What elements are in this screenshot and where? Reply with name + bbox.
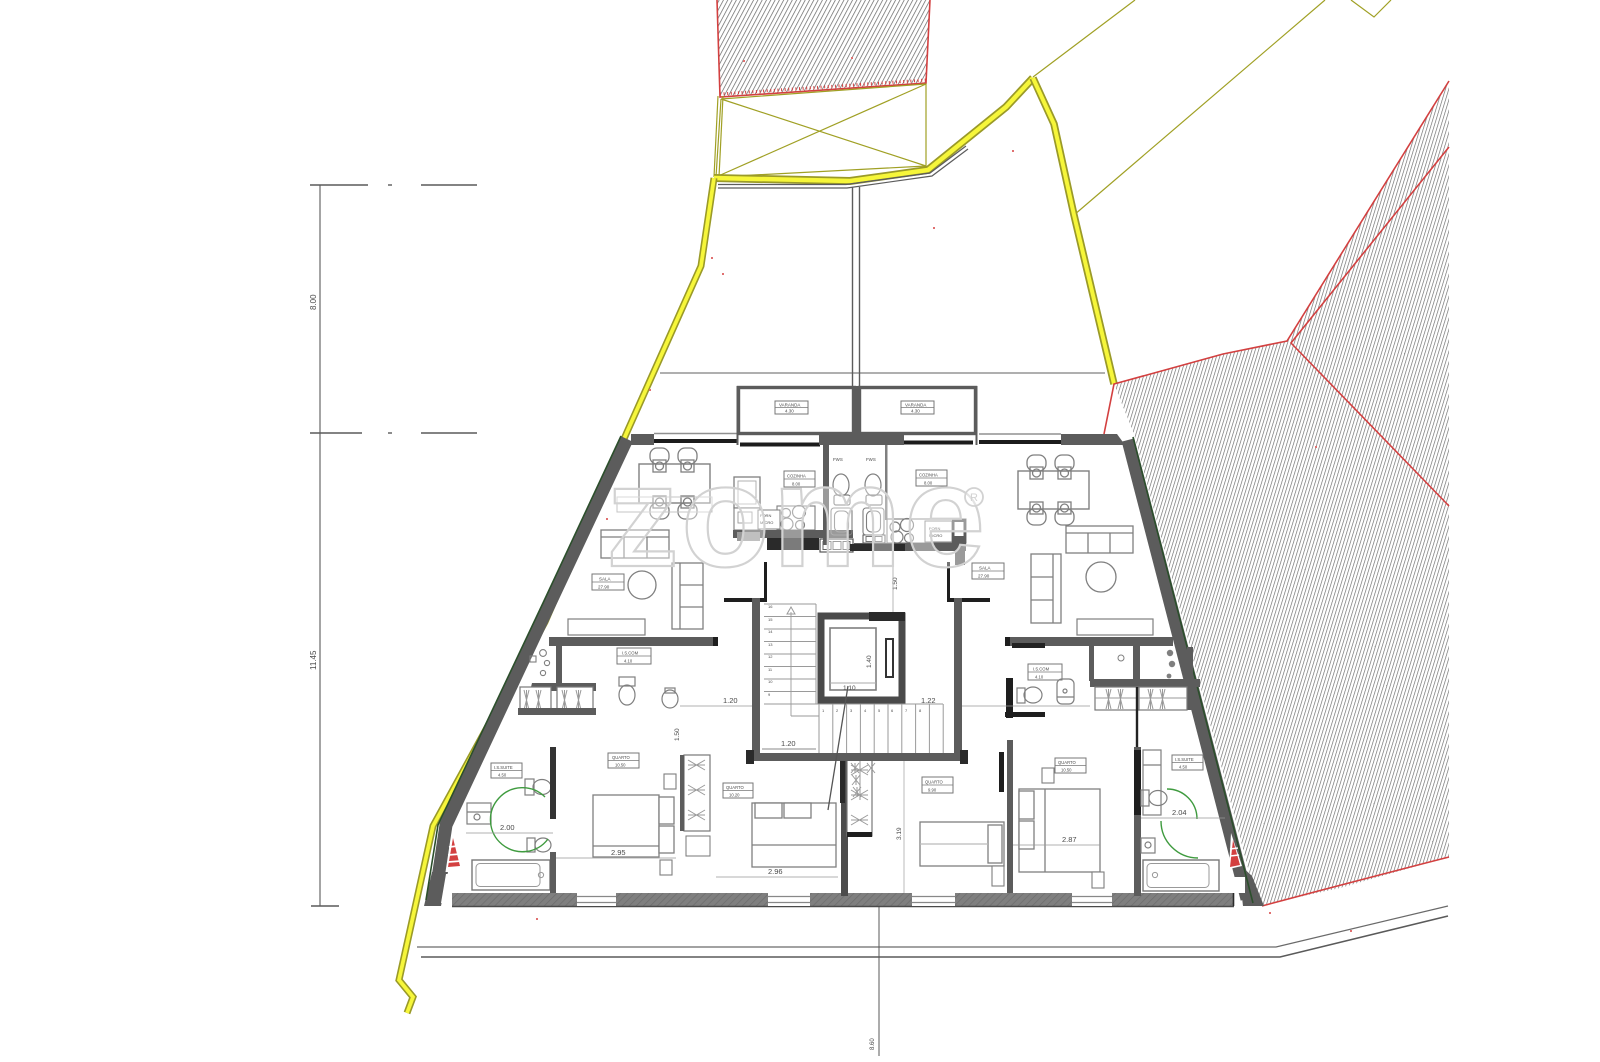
- svg-text:10.50: 10.50: [1061, 768, 1072, 773]
- svg-text:1.20: 1.20: [781, 739, 796, 748]
- svg-text:1.40: 1.40: [866, 655, 873, 668]
- svg-text:I.S.COM: I.S.COM: [622, 651, 639, 656]
- svg-text:4.10: 4.10: [624, 659, 633, 664]
- svg-text:1.50: 1.50: [674, 728, 681, 741]
- svg-text:1.22: 1.22: [921, 696, 936, 705]
- svg-text:2.96: 2.96: [768, 867, 783, 876]
- svg-text:2.87: 2.87: [1062, 835, 1077, 844]
- svg-text:4.50: 4.50: [498, 773, 507, 778]
- svg-text:2.00: 2.00: [500, 823, 515, 832]
- svg-text:I.S.SUITE: I.S.SUITE: [1175, 757, 1194, 762]
- svg-text:10.20: 10.20: [729, 793, 740, 798]
- svg-text:16: 16: [768, 604, 773, 609]
- svg-text:QUARTO: QUARTO: [726, 785, 745, 790]
- svg-text:3.19: 3.19: [896, 827, 903, 840]
- svg-text:zome: zome: [606, 434, 987, 597]
- svg-text:2.95: 2.95: [611, 848, 626, 857]
- svg-text:9.90: 9.90: [928, 788, 937, 793]
- svg-text:10.50: 10.50: [615, 763, 626, 768]
- svg-text:I.S.SUITE: I.S.SUITE: [494, 765, 513, 770]
- svg-text:12: 12: [768, 654, 773, 659]
- svg-text:QUARTO: QUARTO: [1058, 760, 1077, 765]
- svg-text:VARANDA: VARANDA: [779, 403, 800, 408]
- svg-text:4.30: 4.30: [785, 409, 794, 414]
- svg-text:QUARTO: QUARTO: [612, 755, 631, 760]
- svg-text:11.45: 11.45: [309, 650, 318, 670]
- svg-text:QUARTO: QUARTO: [925, 780, 944, 785]
- svg-text:2.04: 2.04: [1172, 808, 1187, 817]
- svg-text:VARANDA: VARANDA: [905, 403, 926, 408]
- svg-text:15: 15: [768, 617, 773, 622]
- svg-text:1.20: 1.20: [723, 696, 738, 705]
- svg-text:8.00: 8.00: [309, 294, 318, 310]
- svg-text:I.S.COM: I.S.COM: [1033, 667, 1050, 672]
- svg-text:R: R: [970, 492, 978, 504]
- svg-text:1.10: 1.10: [843, 685, 856, 692]
- svg-text:10: 10: [768, 679, 773, 684]
- svg-text:8.60: 8.60: [870, 1038, 876, 1050]
- svg-text:14: 14: [768, 629, 773, 634]
- svg-text:13: 13: [768, 642, 773, 647]
- svg-text:4.10: 4.10: [1035, 675, 1044, 680]
- svg-text:4.30: 4.30: [911, 409, 920, 414]
- svg-text:4.50: 4.50: [1179, 765, 1188, 770]
